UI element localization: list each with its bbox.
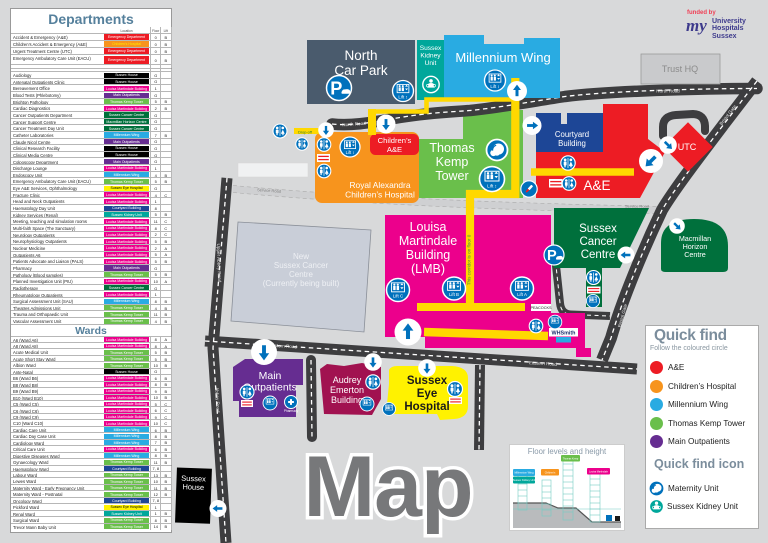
svg-text:Millennium Wing: Millennium Wing (455, 50, 550, 65)
svg-text:Unit: Unit (425, 60, 437, 67)
svg-text:Sussex: Sussex (420, 45, 442, 52)
svg-text:North Road: North Road (656, 89, 680, 94)
svg-text:New: New (293, 252, 309, 261)
svg-text:Lift A: Lift A (517, 292, 527, 297)
svg-text:Eye: Eye (417, 388, 437, 400)
svg-text:Building: Building (331, 395, 363, 405)
svg-text:Millennium Wing: Millennium Wing (514, 471, 534, 475)
svg-text:Louisa: Louisa (410, 220, 447, 234)
svg-text:A&E: A&E (387, 145, 402, 154)
svg-text:Lift ↕: Lift ↕ (490, 84, 499, 89)
svg-text:Thomas Kemp: Thomas Kemp (563, 458, 579, 461)
svg-text:Lift ↕: Lift ↕ (346, 150, 355, 155)
svg-text:(Currently being built): (Currently being built) (263, 279, 340, 288)
svg-text:A&E: A&E (583, 178, 610, 193)
svg-text:House: House (182, 482, 204, 492)
svg-text:North: North (344, 48, 377, 63)
svg-text:Lift ↕: Lift ↕ (398, 95, 407, 100)
svg-text:PEACOCKS: PEACOCKS (530, 306, 552, 310)
svg-text:Lift B: Lift B (449, 292, 459, 297)
svg-text:Hospital: Hospital (404, 401, 449, 413)
svg-text:Audrey: Audrey (333, 375, 362, 385)
svg-text:Children’s: Children’s (545, 472, 556, 475)
svg-text:Map: Map (304, 439, 473, 535)
svg-text:(LMB): (LMB) (411, 262, 445, 276)
svg-text:Sussex: Sussex (579, 223, 617, 235)
svg-text:Lift C: Lift C (393, 294, 403, 299)
svg-text:Kidney: Kidney (420, 53, 441, 60)
svg-text:Sussex: Sussex (407, 375, 448, 387)
svg-text:Pharmacy: Pharmacy (284, 409, 299, 413)
svg-text:Centre: Centre (581, 249, 616, 261)
svg-text:Martindale: Martindale (399, 234, 457, 248)
svg-text:Kemp: Kemp (436, 155, 469, 169)
svg-text:Centre: Centre (684, 250, 706, 259)
svg-text:Children’s Hospital: Children’s Hospital (345, 190, 415, 200)
svg-text:Centre: Centre (289, 270, 314, 279)
svg-text:Service Road: Service Road (625, 204, 649, 209)
svg-text:Emerton: Emerton (330, 385, 364, 395)
svg-text:Thomas: Thomas (429, 141, 474, 155)
svg-text:Sussex Cancer: Sussex Cancer (274, 261, 329, 270)
svg-text:Royal Alexandra: Royal Alexandra (350, 180, 411, 190)
svg-text:Main: Main (259, 370, 282, 382)
svg-text:Building: Building (406, 248, 451, 262)
svg-text:Louisa Martindale: Louisa Martindale (589, 471, 609, 474)
svg-text:Cancer: Cancer (579, 236, 616, 248)
svg-text:Lift ↕: Lift ↕ (487, 184, 497, 189)
svg-text:UTC: UTC (678, 142, 697, 152)
svg-text:This corridor is on floor 0: This corridor is on floor 0 (467, 234, 472, 285)
svg-text:Children’s: Children’s (378, 136, 412, 145)
svg-text:Courtyard: Courtyard (555, 130, 589, 139)
svg-text:Trust HQ: Trust HQ (662, 64, 698, 74)
svg-text:Sussex Kidney Unit: Sussex Kidney Unit (513, 478, 536, 482)
svg-text:WHSmith: WHSmith (552, 331, 576, 337)
svg-text:Drop-off: Drop-off (298, 130, 313, 134)
svg-text:Tower: Tower (435, 169, 468, 183)
svg-text:Building: Building (558, 139, 586, 148)
